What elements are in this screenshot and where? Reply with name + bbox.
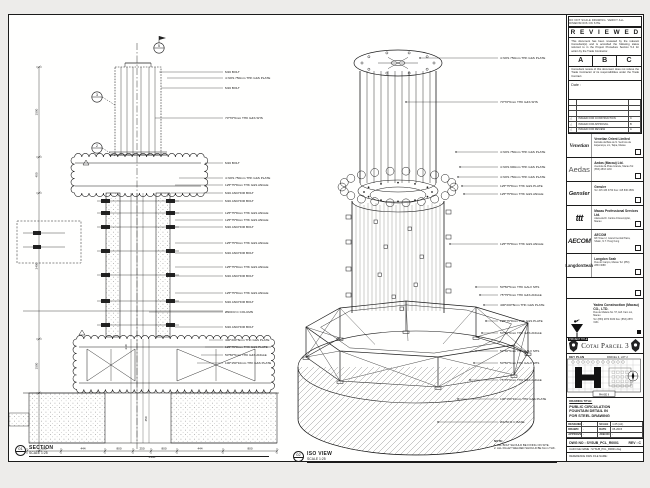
rev-value: C [639, 441, 641, 445]
contractor-mark [637, 330, 641, 334]
revision-rev: A [629, 128, 641, 133]
section-callout-label: 100*150*10mm THK G&S PLATE [225, 361, 271, 365]
consultant-address: 8/F Tower 2, Grand Central Plaza, Shatin… [594, 238, 634, 244]
consultant-checkbox [635, 245, 641, 251]
field-label: SCALE [598, 422, 611, 426]
drawing-title-line: FOR STEEL DRAWING [569, 414, 641, 419]
consultant-row: Venetian Venetian Orient Limited Estrada… [567, 134, 643, 158]
field-label: APPROVED [567, 433, 582, 437]
iso-marker-bubble: 02 [293, 451, 304, 462]
section-callout-label: M16 BOLT [225, 86, 240, 90]
iso-callout-label: 125*75*8mm THK G&S ANGLE [500, 192, 543, 196]
revision-desc [577, 100, 629, 105]
svg-text:PHASE II: PHASE II [599, 393, 609, 396]
section-callout-label: 70*70*6mm THK G&S SHS [225, 116, 263, 120]
drawing-text: 1500 [35, 108, 39, 115]
project-title-strip: PROJECT TITLE Cotai Parcel 3 [567, 338, 643, 354]
iso-callout-label: 75*75*6mm THK G&S ANGLE [500, 293, 542, 297]
section-callout-label: M16 ANCHOR BOLT [225, 191, 254, 195]
iso-callout-label: Ø4250 R.C BASE [500, 420, 525, 424]
section-callout-label: 125*75*8mm THK G&S ANGLE [225, 218, 268, 222]
revision-table: △ISSUED FOR CONSTRUCTIONC△ISSUED FOR APP… [568, 100, 642, 134]
project-title: Cotai Parcel 3 [580, 342, 630, 350]
reviewed-stamp-paragraph-2: Consultant review of this document does … [569, 67, 641, 80]
consultant-logo: Gensler [569, 191, 590, 197]
revision-sym [569, 111, 577, 116]
iso-view-scale: SCALE 1:25 [307, 457, 557, 461]
section-view-drawing: 8004448002508004448004338150040024001500… [9, 15, 287, 463]
section-callout-label: 125*75*8mm THK G&S ANGLE [225, 241, 268, 245]
consultant-row: Aedas Aedas (Macau) Ltd. Avenida da Prai… [567, 158, 643, 182]
seal-checkbox [635, 290, 641, 296]
dwg-no-label: DWG NO : [569, 441, 585, 445]
do-not-scale-strip: DO NOT SCALE DRAWING. VERIFY ALL DIMENSI… [568, 16, 642, 27]
revision-sym: △ [569, 117, 577, 122]
consultant-address: Estrada da Baía de N. Senhora da Esperan… [594, 142, 634, 148]
contractor-address: Rua de Malaca No. 57, Edf. Kam Loi, Maca… [593, 312, 633, 318]
iso-callout-label: 4 NOS 750mm THK G&S PLATE [500, 175, 545, 179]
iso-callout-label: 50*50*5mm THK GALV SHS [500, 349, 539, 353]
drawing-title-box: DRAWING TITLE: PUBLIC CIRCULATIONFOUNTAI… [567, 398, 643, 422]
consultant-row: AECOM AECOM 8/F Tower 2, Grand Central P… [567, 230, 643, 254]
iso-callout-label: 125*75*8mm THK G&S ANGLE [500, 242, 543, 246]
drawing-text: 5 [158, 44, 160, 48]
field-value: 05-2015 [611, 427, 643, 431]
section-callout-label: M16 BOLT [225, 161, 240, 165]
key-plan: KEY PLAN PARCEL 3, LOT 2 PHASE II [567, 354, 643, 398]
reviewed-stamp: R E V I E W E D This document has been r… [568, 27, 642, 100]
revision-desc [577, 111, 629, 116]
section-marker-id: 01 [16, 446, 25, 452]
consultant-list: Venetian Venetian Orient Limited Estrada… [567, 134, 643, 278]
svg-text:KEY PLAN: KEY PLAN [569, 355, 584, 359]
svg-text:PARCEL 3, LOT 2: PARCEL 3, LOT 2 [607, 355, 628, 359]
iso-view-marker: 02 ISO VIEW SCALE 1:25 [293, 451, 563, 463]
consultant-logo: ttt [576, 213, 583, 223]
iso-callout-label: 50*50*5mm THK GALV SHS [500, 285, 539, 289]
revision-rev: C [629, 117, 641, 122]
revision-rev [629, 100, 641, 105]
consultant-row: ttt Macau Professional Services Ltd. Ala… [567, 206, 643, 230]
section-callout-label: M16 ANCHOR BOLT [225, 251, 254, 255]
section-callout-label: 50*50*5mm THK G&S ANGLE [225, 353, 267, 357]
field-value: 1:25 (A1) [611, 422, 643, 426]
iso-callout-label: 400*200*8mm THK G&S PLATE [500, 303, 544, 307]
revision-rev: B [629, 122, 641, 127]
drawing-text: 400 [35, 172, 39, 177]
section-callout-label: 125*75*8mm THK G&S ANGLE [225, 291, 268, 295]
section-callout-label: M16 ANCHOR BOLT [225, 325, 254, 329]
title-block: DO NOT SCALE DRAWING. VERIFY ALL DIMENSI… [567, 15, 643, 461]
section-callout-label: M16 BOLT [225, 70, 240, 74]
field-row: APPROVED-JOB NO- [567, 433, 643, 438]
consultant-checkbox [635, 197, 641, 203]
consultant-checkbox [635, 269, 641, 275]
empty-seal-box [567, 278, 643, 299]
iso-callout-label: 75*75*6mm THK G&S ANGLE [500, 378, 542, 382]
drawing-text: 450 [144, 416, 148, 421]
drawing-view-area: 8004448002508004448004338150040024001500… [9, 15, 567, 461]
consultant-logo: Aedas [569, 165, 590, 174]
section-callout-label: 125*75*8mm THK G&S ANGLE [225, 265, 268, 269]
section-view-scale: SCALE 1:25 [29, 451, 269, 455]
section-callout-label: M16 ANCHOR BOLT [225, 274, 254, 278]
field-label: DESIGNED [567, 422, 582, 426]
field-value: - [611, 433, 643, 437]
drawing-text: 2400 [35, 262, 39, 269]
note-line: 2. ALL FILLET WELDED SHOULD BE 6mm THK. [494, 447, 574, 451]
consultant-checkbox [635, 221, 641, 227]
dwg-no-value: SYSUB_PCL_R0001 [587, 441, 619, 445]
section-callout-label: 4 NOS 750mm THK G&S PLATE [225, 176, 270, 180]
iso-callout-label: 4 NOS 900mm THK G&S PLATE [500, 165, 545, 169]
consultant-checkbox [635, 173, 641, 179]
drawing-sheet: 8004448002508004448004338150040024001500… [8, 14, 644, 462]
dwg-number-row: DWG NO : SYSUB_PCL_R0001 REV : C [567, 439, 643, 447]
consultant-row: LangdonSeah Langdon Seah Rua do Campo, M… [567, 254, 643, 278]
revision-desc [577, 106, 629, 111]
reviewed-option-a: A [569, 56, 593, 66]
field-label: DATE [598, 427, 611, 431]
revision-sym: △ [569, 122, 577, 127]
consultant-row: Gensler Gensler Tel: 415 433 3700 Fax: 4… [567, 182, 643, 206]
iso-callout-label: 4 NOS 750mm THK G&S PLATE [500, 56, 545, 60]
iso-callout-label: 50*50*6mm THK G&S ANGLE [500, 331, 542, 335]
revision-sym [569, 106, 577, 111]
section-marker-bubble: 01 [15, 445, 26, 456]
consultant-logo: LangdonSeah [565, 263, 593, 268]
consultant-address: Tel: 415 433 3700 Fax: 415 836 4599 [594, 190, 634, 193]
reviewed-option-c: C [617, 56, 641, 66]
revision-rev [629, 111, 641, 116]
drawing-text: 2 [96, 144, 98, 148]
contractor-name: Yadea Construction (Macau) CO., LTD. [593, 303, 641, 311]
section-callout-label: 125*75*8mm THK G&S PLATE [225, 345, 268, 349]
revision-desc: ISSUED FOR CONSTRUCTION [577, 117, 629, 122]
iso-view-drawing: 4 NOS 750mm THK G&S PLATE70*70*6mm THK G… [288, 15, 568, 463]
section-view-marker: 01 SECTION SCALE 1:25 [15, 445, 277, 457]
contractor-box: Yadea Construction (Macau) CO., LTD. Rua… [567, 299, 643, 338]
section-callout-label: 125*75*8mm THK G&S ANGLE [225, 183, 268, 187]
contractor-phone: Tel: (853) 2870 3030 Fax: (853) 2870 313… [593, 319, 633, 325]
key-plan-drawing: KEY PLAN PARCEL 3, LOT 2 PHASE II [567, 354, 641, 397]
consultant-logo: AECOM [568, 238, 591, 245]
field-label: JOB NO [598, 433, 611, 437]
section-callout-label: 400*200*8mm THK G&S PLATE [225, 338, 269, 342]
consultant-address: Alameda Dr. Carlos d'Assumpção, Macau [594, 218, 634, 224]
section-callout-label: M16 ANCHOR BOLT [225, 300, 254, 304]
general-notes: NOTE: 1. ALL BOLT SHOULD BE FIXING ON SI… [494, 440, 574, 451]
revision-sym [569, 100, 577, 105]
drawing-title-text: PUBLIC CIRCULATIONFOUNTAIN DETAIL INFOR … [569, 405, 641, 419]
reviewed-stamp-paragraph-1: This document has been reviewed by the r… [569, 38, 641, 55]
iso-callout-label: 4 NOS 750mm THK G&S PLATE [500, 150, 545, 154]
drawing-text: 1500 [35, 362, 39, 369]
project-emblem-right-icon [630, 339, 641, 352]
section-callout-label: Ø900 R.C COLUMN [225, 310, 253, 314]
drawing-text: 3 [96, 93, 98, 97]
revision-desc: ISSUED FOR APPROVAL [577, 122, 629, 127]
revision-sym: △ [569, 128, 577, 133]
consultant-address: Avenida da Praia Grande, Macau Tel: (853… [594, 166, 634, 172]
iso-callout-label: 125*75*8mm THK G&S PLATE [500, 184, 543, 188]
reviewed-option-b: B [593, 56, 617, 66]
reference-dwg-row: REFERENCE DWG FILE NAME : [567, 453, 643, 459]
section-callout-label: 4 NOS 750mm THK G&S PLATE [225, 76, 270, 80]
iso-callout-label: 50*50*5mm THK GALV SHS [500, 361, 539, 365]
consultant-name: Macau Professional Services Ltd. [594, 209, 641, 217]
field-value: - [582, 433, 598, 437]
section-callout-label: M16 ANCHOR BOLT [225, 225, 254, 229]
section-callout-label: M16 ANCHOR BOLT [225, 199, 254, 203]
iso-callout-label: 100*150*10mm THK G&S PLATE [500, 397, 546, 401]
field-value: - [582, 422, 598, 426]
field-label: DRAWN [567, 427, 582, 431]
section-callout-label: 125*75*8mm THK G&S ANGLE [225, 211, 268, 215]
reviewed-status-options: ABC [569, 55, 641, 67]
revision-desc: ISSUED FOR REVIEW [577, 128, 629, 133]
fields-table: DESIGNED-SCALE1:25 (A1)DRAWN-DATE05-2015… [567, 422, 643, 439]
drawing-title-label: DRAWING TITLE: [569, 399, 641, 403]
revision-row: △ISSUED FOR REVIEWA [569, 128, 641, 134]
reviewed-stamp-title: R E V I E W E D [569, 28, 641, 38]
iso-callout-label: 125*75*8mm THK G&S PLATE [500, 319, 543, 323]
project-title-label: PROJECT TITLE [568, 338, 588, 341]
revision-rev [629, 106, 641, 111]
rev-label: REV : [629, 441, 638, 445]
reviewed-date-label: Date : [569, 80, 641, 91]
consultant-logo: Venetian [569, 143, 588, 149]
consultant-checkbox [635, 149, 641, 155]
iso-callout-label: 70*70*6mm THK G&S SHS [500, 100, 538, 104]
field-value: - [582, 427, 598, 431]
drawing-text: 240 [124, 344, 128, 349]
iso-marker-id: 02 [294, 452, 303, 458]
consultant-address: Rua do Campo, Macau Tel: (853) 2833 3088 [594, 262, 634, 268]
